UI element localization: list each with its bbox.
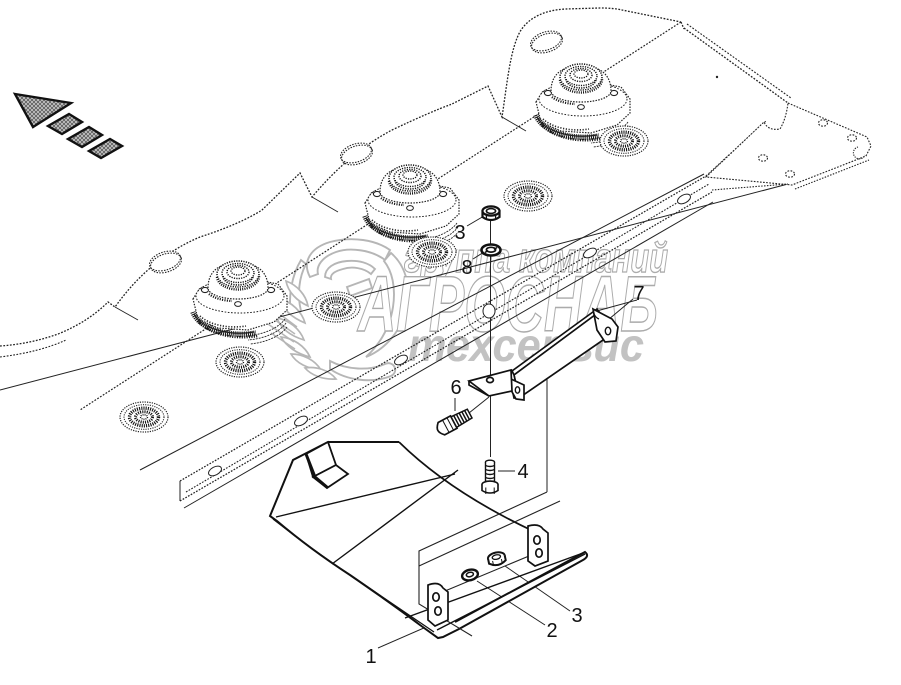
svg-text:2: 2 [546, 620, 557, 642]
svg-text:1: 1 [365, 646, 376, 668]
svg-text:8: 8 [461, 257, 472, 279]
svg-text:6: 6 [450, 377, 461, 399]
svg-text:4: 4 [517, 461, 528, 483]
svg-text:3: 3 [571, 605, 582, 627]
svg-text:7: 7 [633, 283, 644, 305]
svg-text:3: 3 [454, 222, 465, 244]
